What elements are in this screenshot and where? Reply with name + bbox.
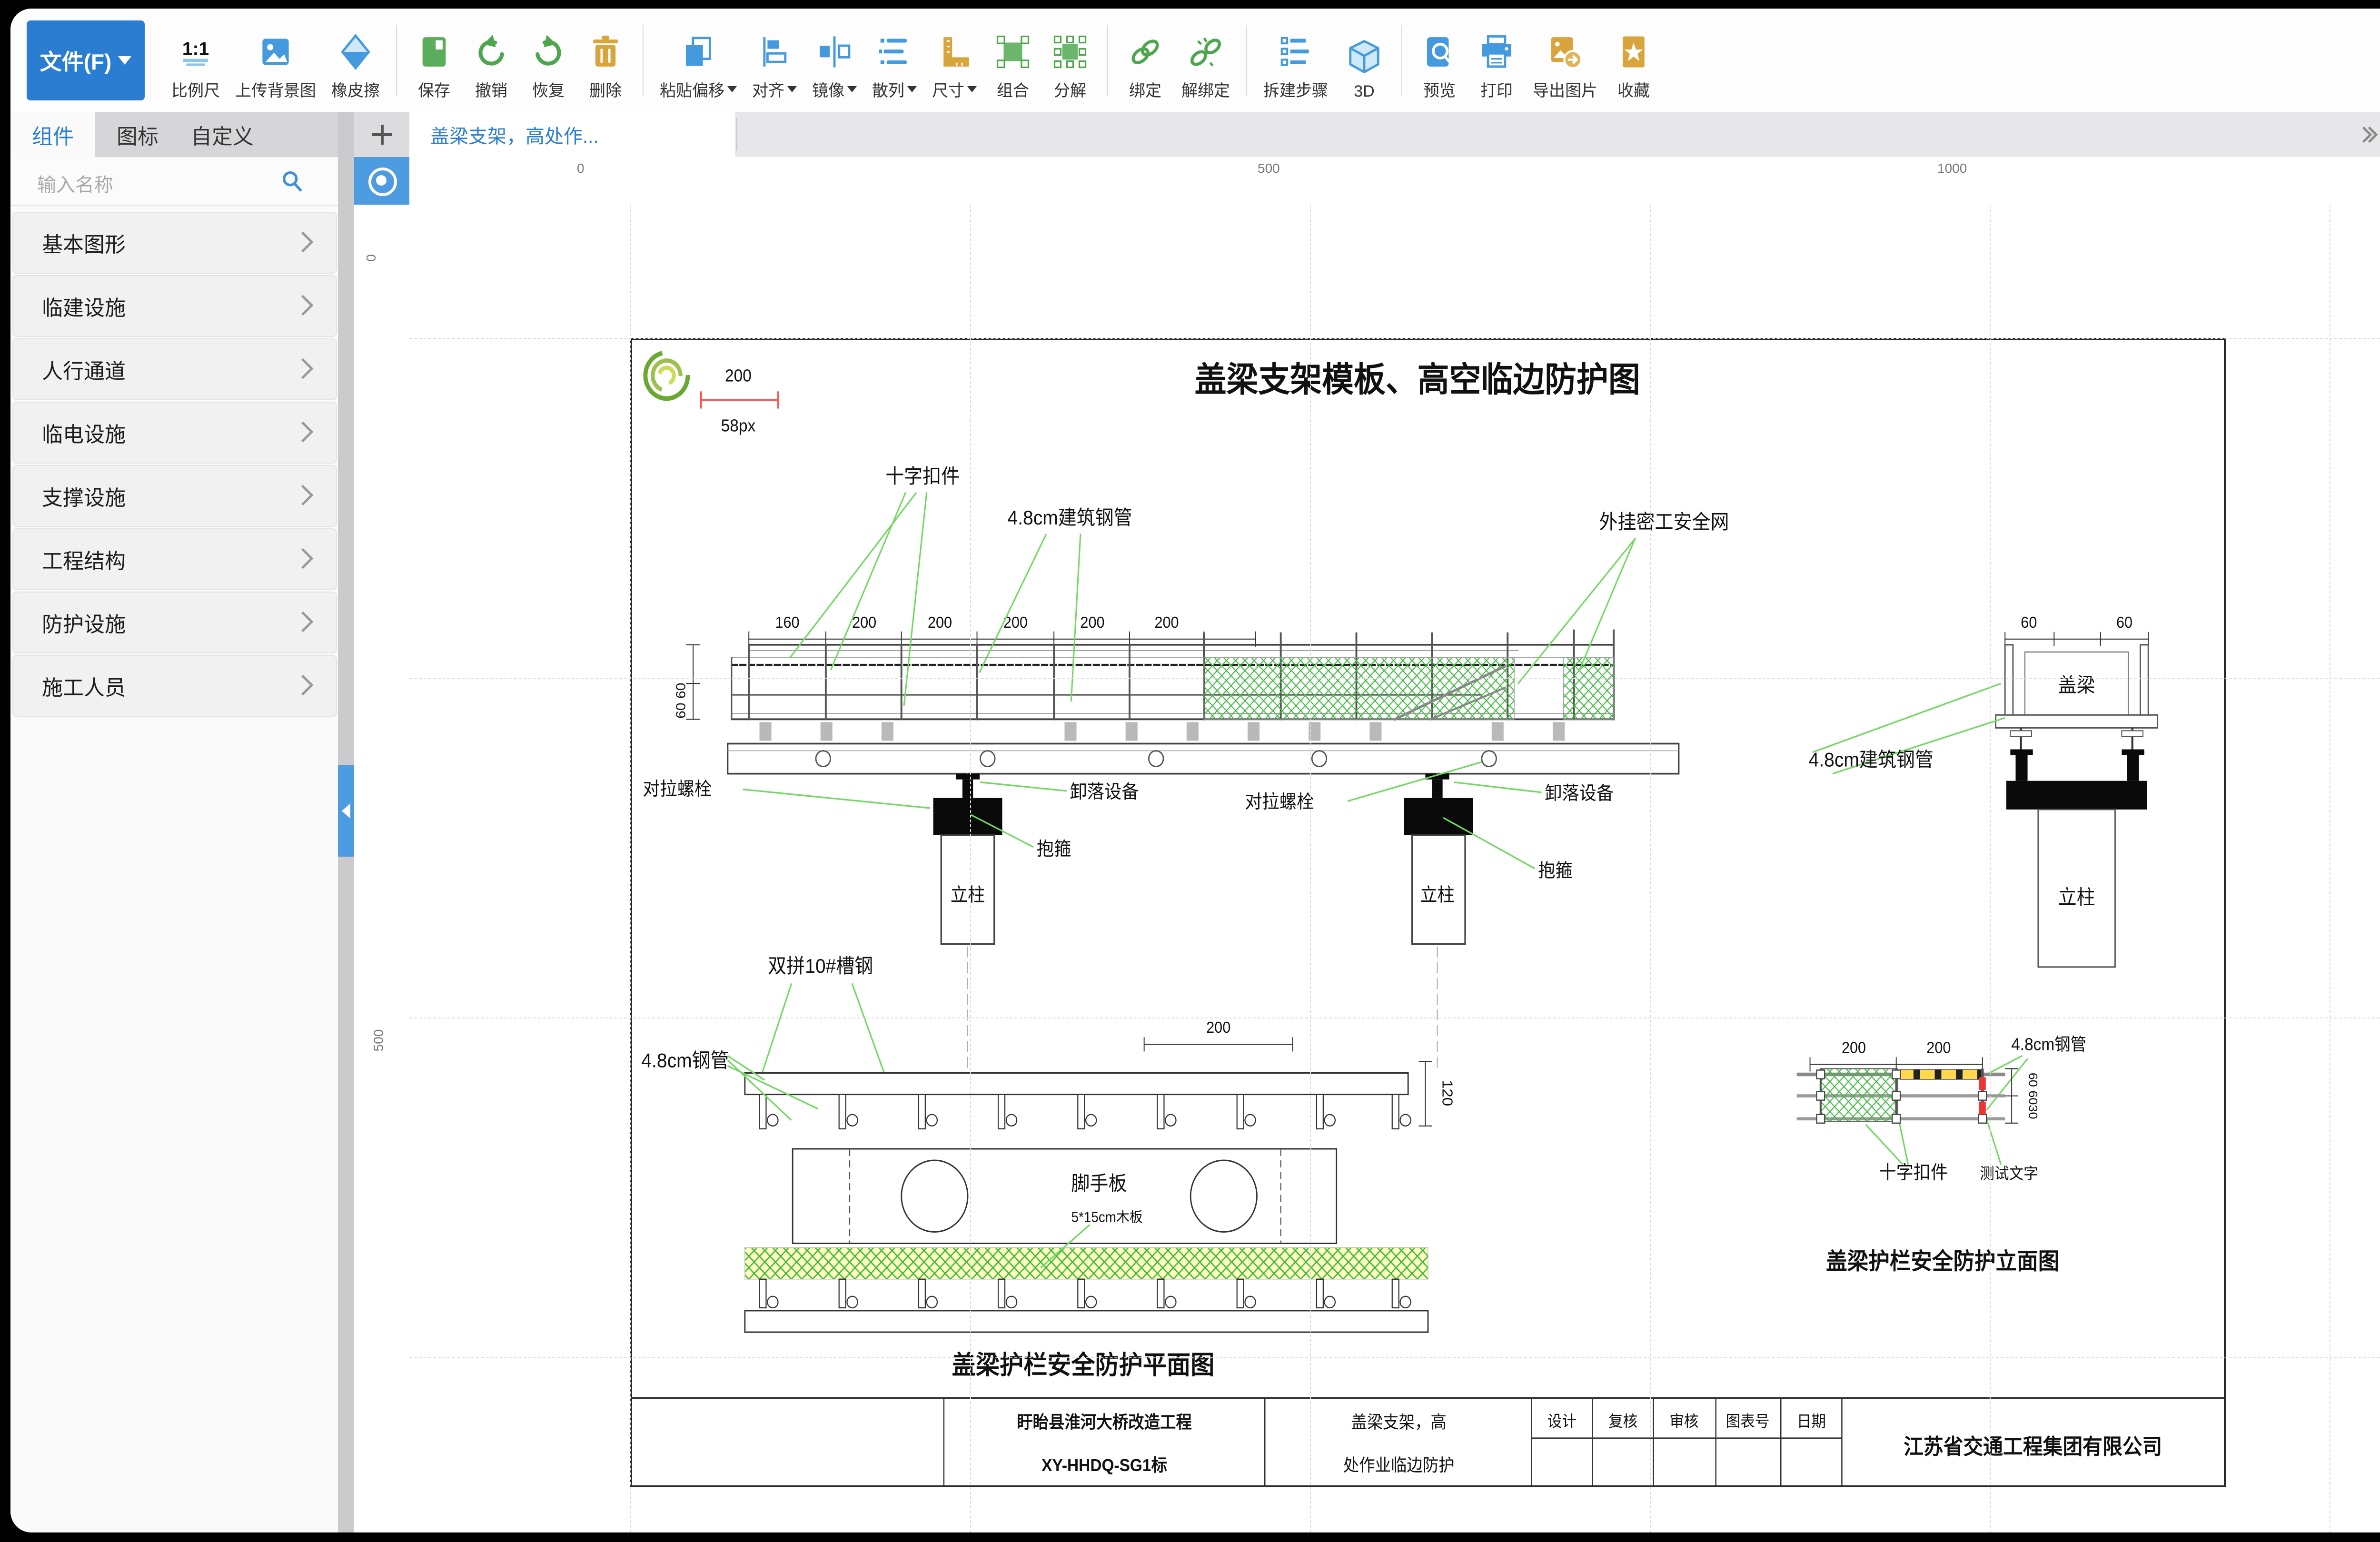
gridline: [2330, 205, 2330, 1532]
sidebar-collapse-handle[interactable]: [338, 765, 354, 857]
chevron-down-icon: [727, 86, 737, 92]
drawing-tab-label: 盖梁支架，高处作...: [430, 121, 598, 148]
label-steel-pipe: 4.8cm建筑钢管: [1008, 506, 1132, 529]
tool-label: 比例尺: [171, 78, 220, 101]
add-tab-button[interactable]: [354, 112, 409, 157]
undo-icon: [470, 31, 512, 73]
unbind-button[interactable]: 解绑定: [1174, 20, 1238, 101]
tool-label: 尺寸: [932, 78, 964, 101]
label-release-device: 卸落设备: [1070, 781, 1139, 802]
label-cross-clamp: 十字扣件: [885, 465, 960, 487]
undo-button[interactable]: 撤销: [463, 20, 520, 101]
sheet-svg: 200 58px 盖梁支架模板、高空临边防护图: [632, 340, 2224, 1485]
label-column: 立柱: [951, 884, 985, 905]
chevron-right-icon: [293, 358, 314, 379]
chevron-down-icon: [907, 86, 917, 92]
star-icon: [1613, 31, 1655, 73]
ruler-origin-button[interactable]: [354, 157, 409, 205]
label-release-device: 卸落设备: [1545, 783, 1614, 804]
tb-header: 日期: [1797, 1413, 1826, 1430]
cube-icon: [1343, 36, 1385, 78]
title-block: 盱眙县淮河大桥改造工程 XY-HHDQ-SG1标 盖梁支架，高 处作业临边防护 …: [632, 1398, 2224, 1485]
plan-caption: 盖梁护栏安全防护平面图: [952, 1351, 1215, 1380]
scale-indicator: 200 58px: [701, 366, 778, 435]
dim: 160: [775, 613, 799, 631]
sidebar-item-label: 临电设施: [42, 417, 126, 448]
drawing-sheet[interactable]: 200 58px 盖梁支架模板、高空临边防护图: [630, 338, 2226, 1487]
sidebar-item-label: 工程结构: [42, 544, 126, 574]
sidebar-item[interactable]: 临电设施: [12, 402, 337, 464]
chevron-down-icon: [847, 86, 857, 92]
toolbar-divider: [1107, 25, 1108, 96]
dim: 120: [1439, 1080, 1456, 1106]
trash-icon: [585, 31, 626, 73]
save-button[interactable]: 保存: [406, 20, 463, 101]
sidebar-item[interactable]: 基本图形: [12, 212, 337, 274]
dimension-button[interactable]: 尺寸: [924, 20, 984, 101]
tb-header: 复核: [1608, 1413, 1637, 1430]
sidebar-item[interactable]: 防护设施: [12, 592, 337, 653]
favorite-button[interactable]: 收藏: [1605, 20, 1662, 101]
label-plank-size: 5*15cm木板: [1071, 1209, 1143, 1225]
elevation-caption: 盖梁护栏安全防护立面图: [1826, 1248, 2059, 1274]
label-hoop: 抱箍: [1037, 839, 1071, 860]
dim: 60: [2116, 613, 2132, 631]
dim: 60 6030: [2026, 1073, 2040, 1119]
scatter-list-icon: [873, 31, 915, 73]
file-menu-label: 文件(F): [40, 45, 112, 76]
sidebar-item-label: 施工人员: [42, 671, 126, 701]
dim: 200: [1206, 1018, 1230, 1036]
gridline: [409, 1357, 2380, 1358]
label-tie-bolt: 对拉螺栓: [643, 779, 712, 800]
label-safety-net: 外挂密工安全网: [1599, 511, 1729, 534]
scale-ruler-button[interactable]: 1:1 比例尺: [164, 20, 228, 101]
delete-button[interactable]: 删除: [577, 20, 634, 101]
ruler-label: 0: [577, 161, 585, 176]
company-logo: [645, 353, 688, 398]
tool-label: 散列: [872, 78, 904, 101]
chevron-down-icon: [967, 86, 977, 92]
sheet-title: 盖梁支架模板、高空临边防护图: [1195, 360, 1640, 399]
tb-header: 图表号: [1726, 1413, 1770, 1430]
chevron-down-icon: [118, 56, 131, 65]
search-input[interactable]: 输入名称: [10, 157, 338, 206]
gridline: [1310, 205, 1311, 1532]
tool-label: 对齐: [752, 78, 784, 101]
project-code: XY-HHDQ-SG1标: [1041, 1456, 1167, 1475]
build-steps-button[interactable]: 拆建步骤: [1256, 20, 1336, 101]
chevron-right-icon: [293, 675, 314, 696]
paste-offset-icon: [677, 31, 719, 73]
double-chevron-right-icon[interactable]: [2357, 123, 2380, 146]
dim: 200: [852, 613, 876, 631]
eraser-button[interactable]: 橡皮擦: [324, 20, 387, 101]
section-drawing: 60 60 盖梁: [1809, 613, 2158, 967]
chevron-right-icon: [293, 485, 314, 506]
eraser-icon: [335, 31, 377, 73]
sidebar-item[interactable]: 临建设施: [12, 275, 337, 337]
mirror-icon: [813, 31, 855, 73]
printer-icon: [1476, 31, 1517, 73]
toolbar-divider: [643, 25, 644, 96]
gridline: [409, 678, 2380, 679]
link-icon: [1124, 31, 1166, 73]
dim: 200: [1080, 613, 1104, 631]
label-steel-pipe: 4.8cm钢管: [2011, 1035, 2086, 1054]
redo-icon: [527, 31, 569, 73]
tool-label: 恢复: [532, 78, 565, 101]
tab-custom[interactable]: 自定义: [180, 112, 265, 157]
scale-value: 200: [725, 366, 752, 385]
paste-offset-button[interactable]: 粘贴偏移: [652, 20, 744, 101]
search-icon[interactable]: [280, 168, 305, 193]
canvas-body[interactable]: 200 58px 盖梁支架模板、高空临边防护图: [409, 205, 2380, 1532]
tab-components[interactable]: 组件: [10, 112, 95, 157]
guardrail-elevation-drawing: 200 200 4.8cm钢管: [1797, 1035, 2086, 1274]
component-sidebar: 组件 图标 自定义 输入名称 基本图形临建设施人行通道临电设施支撑设施工程结构防…: [10, 112, 338, 1532]
label-column: 立柱: [2058, 886, 2095, 909]
sidebar-item[interactable]: 工程结构: [12, 528, 337, 590]
ungroup-icon: [1049, 31, 1091, 73]
toolbar-divider: [1246, 25, 1247, 96]
scale-pixels: 58px: [721, 416, 756, 435]
label-steel-pipe: 4.8cm建筑钢管: [1809, 748, 1934, 771]
save-icon: [413, 31, 455, 73]
group-button[interactable]: 组合: [984, 20, 1041, 101]
drawing-tab[interactable]: 盖梁支架，高处作...: [409, 112, 735, 157]
chevron-right-icon: [293, 232, 314, 253]
label-column: 立柱: [1420, 884, 1454, 905]
sidebar-item[interactable]: 支撑设施: [12, 465, 337, 527]
tool-label: 收藏: [1617, 78, 1650, 101]
gridline: [970, 205, 971, 1532]
export-image-icon: [1544, 31, 1586, 73]
chevron-right-icon: [293, 422, 314, 443]
preview-button[interactable]: 预览: [1411, 20, 1468, 101]
tool-label: 上传背景图: [235, 78, 316, 101]
label-channel-steel: 双拼10#槽钢: [768, 954, 873, 977]
gridline: [409, 1018, 2380, 1018]
tool-label: 导出图片: [1533, 78, 1597, 101]
image-icon: [255, 31, 297, 73]
ruler-label: 500: [371, 1029, 386, 1052]
label-test-text: 测试文字: [1980, 1165, 2038, 1182]
tool-label: 粘贴偏移: [660, 78, 724, 101]
tab-icons[interactable]: 图标: [95, 112, 180, 157]
tool-label: 解绑定: [1181, 78, 1230, 101]
toolbar-divider: [396, 25, 397, 96]
drawing-name: 盖梁支架，高: [1351, 1413, 1447, 1432]
gridline: [630, 205, 631, 1532]
ruler-label: 500: [1258, 161, 1280, 176]
gridline: [409, 338, 2380, 339]
gridline: [1990, 205, 1991, 1532]
align-button[interactable]: 对齐: [744, 20, 804, 101]
mirror-button[interactable]: 镜像: [804, 20, 864, 101]
dim: 200: [1154, 613, 1179, 631]
tool-label: 镜像: [812, 78, 844, 101]
tool-label: 保存: [418, 78, 450, 101]
sidebar-item-label: 基本图形: [42, 227, 126, 258]
sidebar-item-label: 人行通道: [42, 354, 126, 385]
horizontal-ruler[interactable]: 0 500 1000: [409, 157, 2380, 206]
tool-label: 3D: [1354, 82, 1374, 101]
dim: 200: [1842, 1038, 1866, 1056]
tool-label: 预览: [1423, 78, 1456, 101]
preview-magnifier-icon: [1418, 31, 1460, 73]
scale-icon-text: 1:1: [182, 39, 209, 59]
gridline: [1650, 205, 1651, 1532]
company-name: 江苏省交通工程集团有限公司: [1904, 1435, 2162, 1459]
tb-header: 设计: [1547, 1413, 1577, 1430]
chevron-right-icon: [293, 295, 314, 316]
plan-drawing: 200 120: [641, 1018, 1456, 1380]
chevron-left-icon: [342, 803, 350, 819]
ruler-label: 1000: [1937, 161, 1967, 176]
label-hoop: 抱箍: [1538, 860, 1572, 881]
elevation-drawing: 160 200 200 200 200 200 60 60: [643, 465, 1729, 1073]
tool-label: 组合: [997, 78, 1029, 101]
tab-divider: [736, 118, 737, 151]
scale-1to1-icon: 1:1: [175, 31, 217, 73]
sidebar-tabs: 组件 图标 自定义: [10, 112, 338, 157]
dim: 200: [1926, 1038, 1951, 1056]
scatter-button[interactable]: 散列: [864, 20, 924, 101]
steps-list-icon: [1275, 31, 1317, 73]
label-steel-pipe: 4.8cm钢管: [641, 1049, 729, 1072]
label-scaffold-plank: 脚手板: [1071, 1172, 1127, 1195]
vertical-ruler[interactable]: 0 500: [354, 205, 410, 1532]
group-icon: [992, 31, 1034, 73]
dim: 60: [2021, 613, 2037, 631]
print-button[interactable]: 打印: [1468, 20, 1525, 101]
3d-button[interactable]: 3D: [1336, 20, 1393, 101]
tool-label: 绑定: [1129, 78, 1161, 101]
toolbar-divider: [1401, 25, 1402, 96]
canvas-region: 盖梁支架，高处作... 0 500 1000 0 500: [354, 112, 2380, 1532]
file-menu-button[interactable]: 文件(F): [27, 20, 145, 100]
toolbar: 文件(F) 1:1 比例尺 上传背景图 橡皮擦 保存: [10, 9, 2380, 113]
sidebar-item-label: 支撑设施: [42, 481, 126, 511]
drawing-name: 处作业临边防护: [1343, 1456, 1455, 1475]
export-image-button[interactable]: 导出图片: [1525, 20, 1605, 101]
align-icon: [754, 31, 795, 73]
tool-label: 橡皮擦: [331, 78, 380, 101]
sidebar-divider: [338, 112, 354, 1532]
sidebar-item[interactable]: 施工人员: [12, 655, 337, 717]
ruler-icon: [933, 31, 975, 73]
sidebar-item-label: 临建设施: [42, 291, 126, 321]
bind-button[interactable]: 绑定: [1117, 20, 1174, 101]
dim-left: 60 60: [674, 683, 688, 719]
app-window: 文件(F) 1:1 比例尺 上传背景图 橡皮擦 保存: [10, 9, 2380, 1532]
label-tie-bolt: 对拉螺栓: [1245, 791, 1314, 812]
chevron-down-icon: [787, 86, 797, 92]
tool-label: 分解: [1054, 78, 1086, 101]
ungroup-button[interactable]: 分解: [1041, 20, 1099, 101]
label-cross-clamp: 十字扣件: [1879, 1162, 1948, 1183]
tb-header: 审核: [1669, 1413, 1698, 1430]
tool-label: 删除: [589, 78, 622, 101]
sidebar-item[interactable]: 人行通道: [12, 338, 337, 400]
ruler-label: 0: [364, 254, 379, 262]
sidebar-item-label: 防护设施: [42, 607, 126, 638]
tool-label: 拆建步骤: [1263, 78, 1328, 101]
tool-label: 撤销: [475, 78, 507, 101]
chevron-right-icon: [293, 548, 314, 569]
search-placeholder: 输入名称: [37, 169, 113, 197]
link-broken-icon: [1185, 31, 1227, 73]
upload-background-button[interactable]: 上传背景图: [228, 20, 324, 101]
chevron-right-icon: [293, 612, 314, 633]
dim: 200: [928, 613, 952, 631]
project-name: 盱眙县淮河大桥改造工程: [1017, 1413, 1192, 1432]
tool-label: 打印: [1480, 78, 1513, 101]
redo-button[interactable]: 恢复: [520, 20, 577, 101]
canvas-tab-bar: 盖梁支架，高处作...: [354, 112, 2380, 158]
label-cap-beam: 盖梁: [2058, 674, 2095, 697]
